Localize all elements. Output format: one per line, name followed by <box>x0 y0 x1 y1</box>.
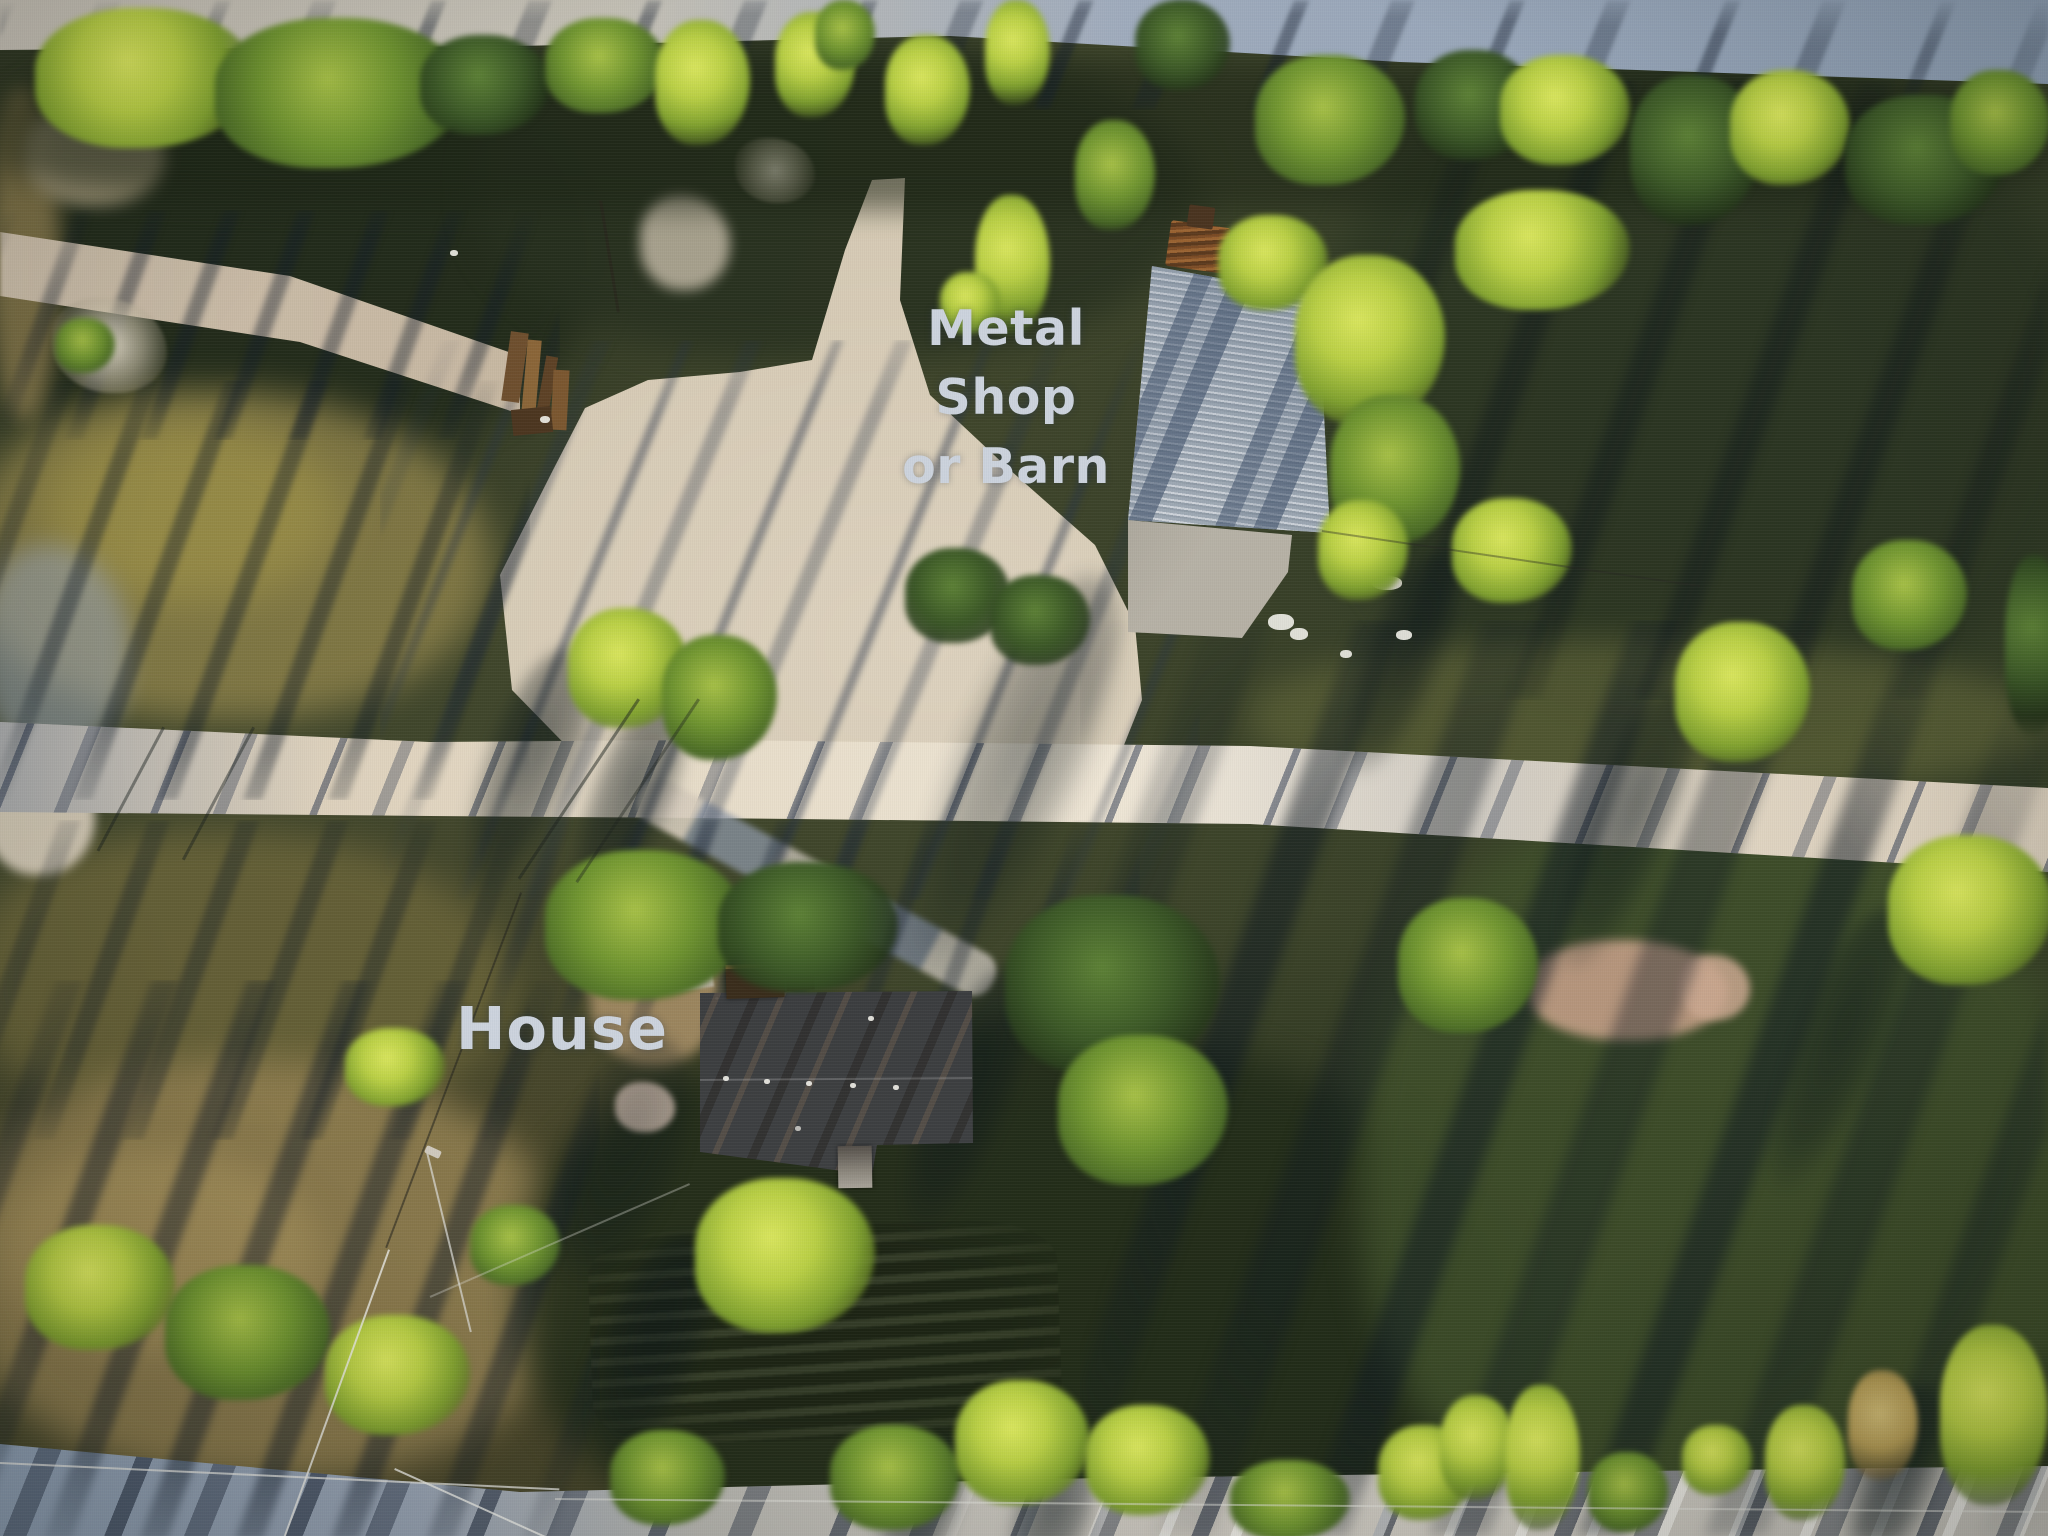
roof-vent <box>850 1083 856 1088</box>
shadow-streaks-left-gold <box>0 380 530 800</box>
barn-label-line2: Shop <box>858 363 1154 432</box>
roof-vent <box>868 1016 874 1021</box>
tree <box>1950 70 2048 175</box>
tree <box>2005 555 2048 735</box>
shadow-streaks-left-lower <box>0 820 530 1140</box>
ground-white-item <box>1396 630 1412 640</box>
house-annotation-label: House <box>452 999 672 1059</box>
tree <box>1888 835 2048 985</box>
barn-label-line1: Metal <box>858 294 1154 363</box>
barn-label-line3: or Barn <box>858 432 1154 501</box>
chimney-block <box>838 1146 873 1189</box>
debris-speck <box>450 250 458 256</box>
pad-white-item <box>1268 614 1294 630</box>
wood-debris <box>1187 204 1216 229</box>
pad-white-item <box>1290 628 1308 640</box>
ground-white-item <box>1340 650 1352 658</box>
debris-speck <box>540 416 550 423</box>
roof-vent <box>764 1079 770 1084</box>
roof-vent <box>806 1081 812 1086</box>
roof-vent <box>893 1085 899 1090</box>
roof-vent <box>723 1076 729 1081</box>
roof-vent <box>795 1126 801 1131</box>
tree <box>1230 1460 1350 1536</box>
lumber-plank <box>550 370 569 431</box>
barn-annotation-label: Metal Shop or Barn <box>858 294 1154 501</box>
aerial-photo: Metal Shop or Barn House <box>0 0 2048 1536</box>
